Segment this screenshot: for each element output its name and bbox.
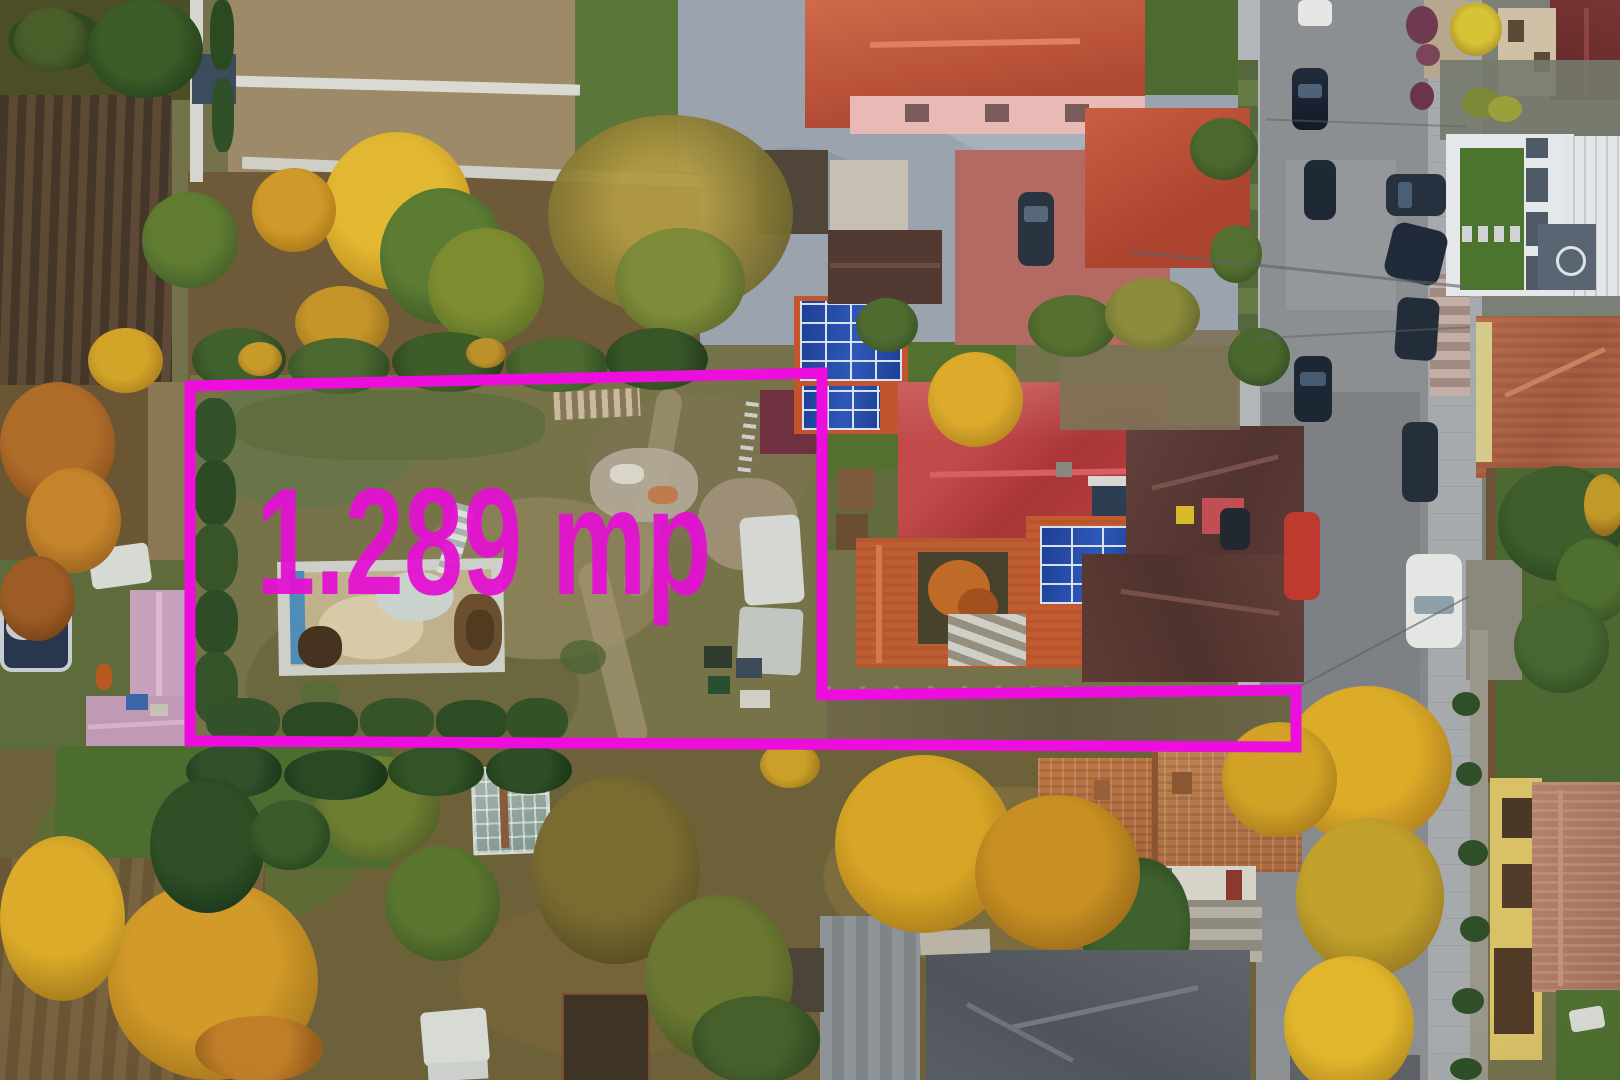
aerial-photo: 1.289 mp (0, 0, 1620, 1080)
area-label: 1.289 mp (256, 466, 711, 618)
plot-outline-overlay (0, 0, 1620, 1080)
